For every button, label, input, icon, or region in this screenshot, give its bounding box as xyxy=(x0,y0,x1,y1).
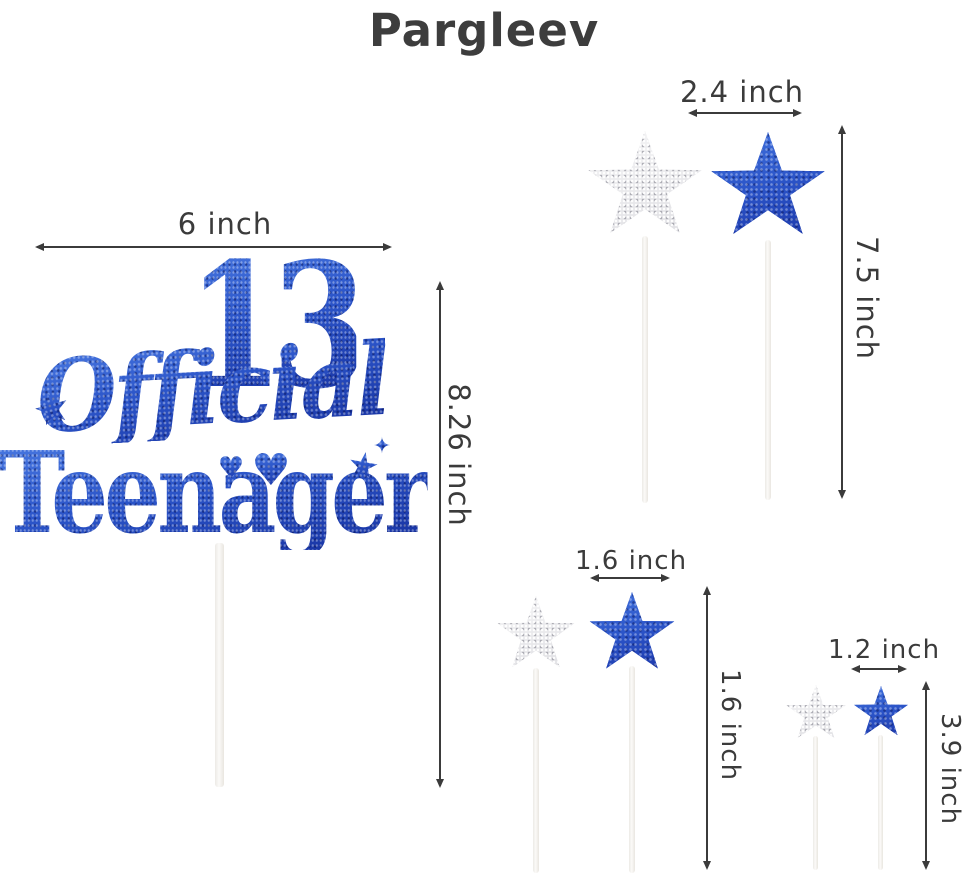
medium-silver-star xyxy=(496,596,576,674)
large-silver-star-stick xyxy=(642,236,648,503)
large-blue-star-stick xyxy=(765,240,771,500)
large-silver-star xyxy=(586,131,704,243)
large-star-width-label: 2.4 inch xyxy=(680,75,804,109)
large-star-height-arrow xyxy=(841,127,843,497)
small-star-width-label: 1.2 inch xyxy=(828,635,940,665)
medium-star-width-arrow xyxy=(592,577,668,579)
small-star-height-label: 3.9 inch xyxy=(935,713,965,825)
medium-star-width-label: 1.6 inch xyxy=(575,546,687,576)
medium-silver-star-stick xyxy=(533,668,539,873)
small-silver-star xyxy=(785,685,847,743)
product-dimension-diagram: Pargleev 6 inch 13 Official Teenager ★ ♥… xyxy=(0,0,968,876)
medium-blue-star-stick xyxy=(629,666,635,873)
large-star-width-arrow xyxy=(690,112,800,114)
small-star-height-arrow xyxy=(925,683,927,868)
small-blue-star xyxy=(853,686,909,740)
medium-star-height-arrow xyxy=(706,588,708,868)
topper-heart-large-icon: ♥ xyxy=(251,449,290,493)
brand-title: Pargleev xyxy=(0,4,968,57)
small-star-width-arrow xyxy=(853,668,905,670)
topper-stick xyxy=(215,543,224,787)
topper-heart-small-icon: ♥ xyxy=(218,454,245,484)
topper-star-right-icon: ★ xyxy=(344,446,382,487)
topper-height-label: 8.26 inch xyxy=(442,383,476,527)
large-star-height-label: 7.5 inch xyxy=(850,236,884,360)
large-blue-star xyxy=(709,132,827,244)
medium-star-height-label: 1.6 inch xyxy=(715,669,745,781)
small-silver-star-stick xyxy=(813,736,818,870)
medium-blue-star xyxy=(588,592,676,676)
small-blue-star-stick xyxy=(878,735,883,870)
topper-height-arrow xyxy=(439,283,441,786)
